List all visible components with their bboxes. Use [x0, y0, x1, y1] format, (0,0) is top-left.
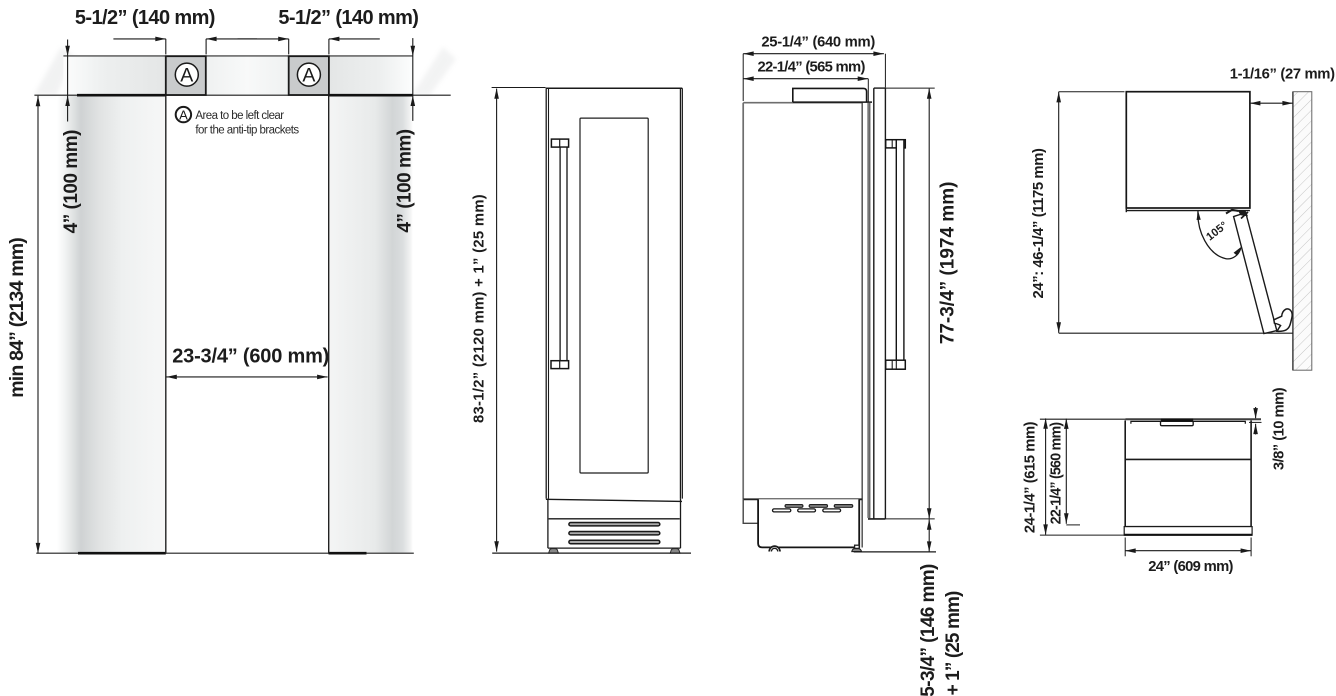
svg-text:25-1/4” (640 mm): 25-1/4” (640 mm): [761, 34, 875, 50]
svg-text:A: A: [179, 107, 188, 122]
svg-text:4” (100 mm): 4” (100 mm): [61, 130, 82, 233]
svg-text:3/8” (10 mm): 3/8” (10 mm): [1272, 387, 1288, 470]
svg-text:24” (609 mm): 24” (609 mm): [1148, 559, 1233, 575]
svg-text:+ 1” (25 mm): + 1” (25 mm): [943, 591, 964, 695]
svg-text:22-1/4” (565 mm): 22-1/4” (565 mm): [757, 59, 865, 75]
svg-text:77-3/4” (1974 mm): 77-3/4” (1974 mm): [938, 182, 959, 345]
svg-text:24-1/4” (615 mm): 24-1/4” (615 mm): [1022, 421, 1038, 533]
svg-text:4” (100 mm): 4” (100 mm): [395, 129, 416, 232]
svg-text:Area to be left clear: Area to be left clear: [195, 110, 284, 122]
svg-text:22-1/4” (560 mm): 22-1/4” (560 mm): [1049, 422, 1065, 525]
svg-text:A: A: [180, 65, 193, 87]
svg-text:5-1/2” (140 mm): 5-1/2” (140 mm): [75, 7, 215, 29]
svg-text:23-3/4” (600 mm): 23-3/4” (600 mm): [172, 345, 329, 367]
svg-text:5-1/2” (140 mm): 5-1/2” (140 mm): [278, 7, 418, 29]
svg-text:A: A: [302, 65, 315, 87]
svg-text:83-1/2” (2120 mm) + 1” (25 mm): 83-1/2” (2120 mm) + 1” (25 mm): [472, 194, 488, 423]
svg-text:24”: 46-1/4” (1175 mm): 24”: 46-1/4” (1175 mm): [1031, 148, 1047, 298]
svg-text:min 84” (2134 mm): min 84” (2134 mm): [6, 238, 28, 398]
svg-text:5-3/4” (146 mm): 5-3/4” (146 mm): [918, 564, 939, 696]
svg-text:for the anti-tip brackets: for the anti-tip brackets: [195, 125, 299, 137]
svg-text:1-1/16” (27 mm): 1-1/16” (27 mm): [1230, 67, 1335, 83]
